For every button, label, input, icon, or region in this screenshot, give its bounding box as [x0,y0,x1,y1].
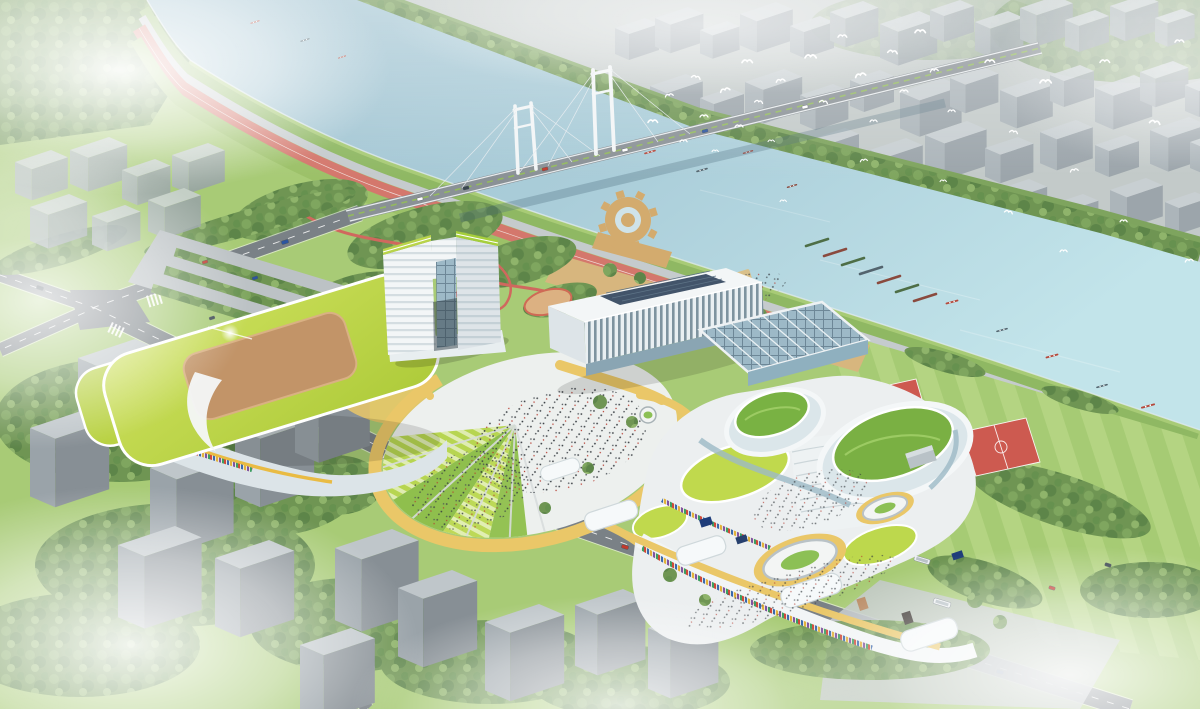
tower-building [383,231,511,374]
rendering-canvas [0,0,1200,709]
rendering-stage [0,0,1200,709]
